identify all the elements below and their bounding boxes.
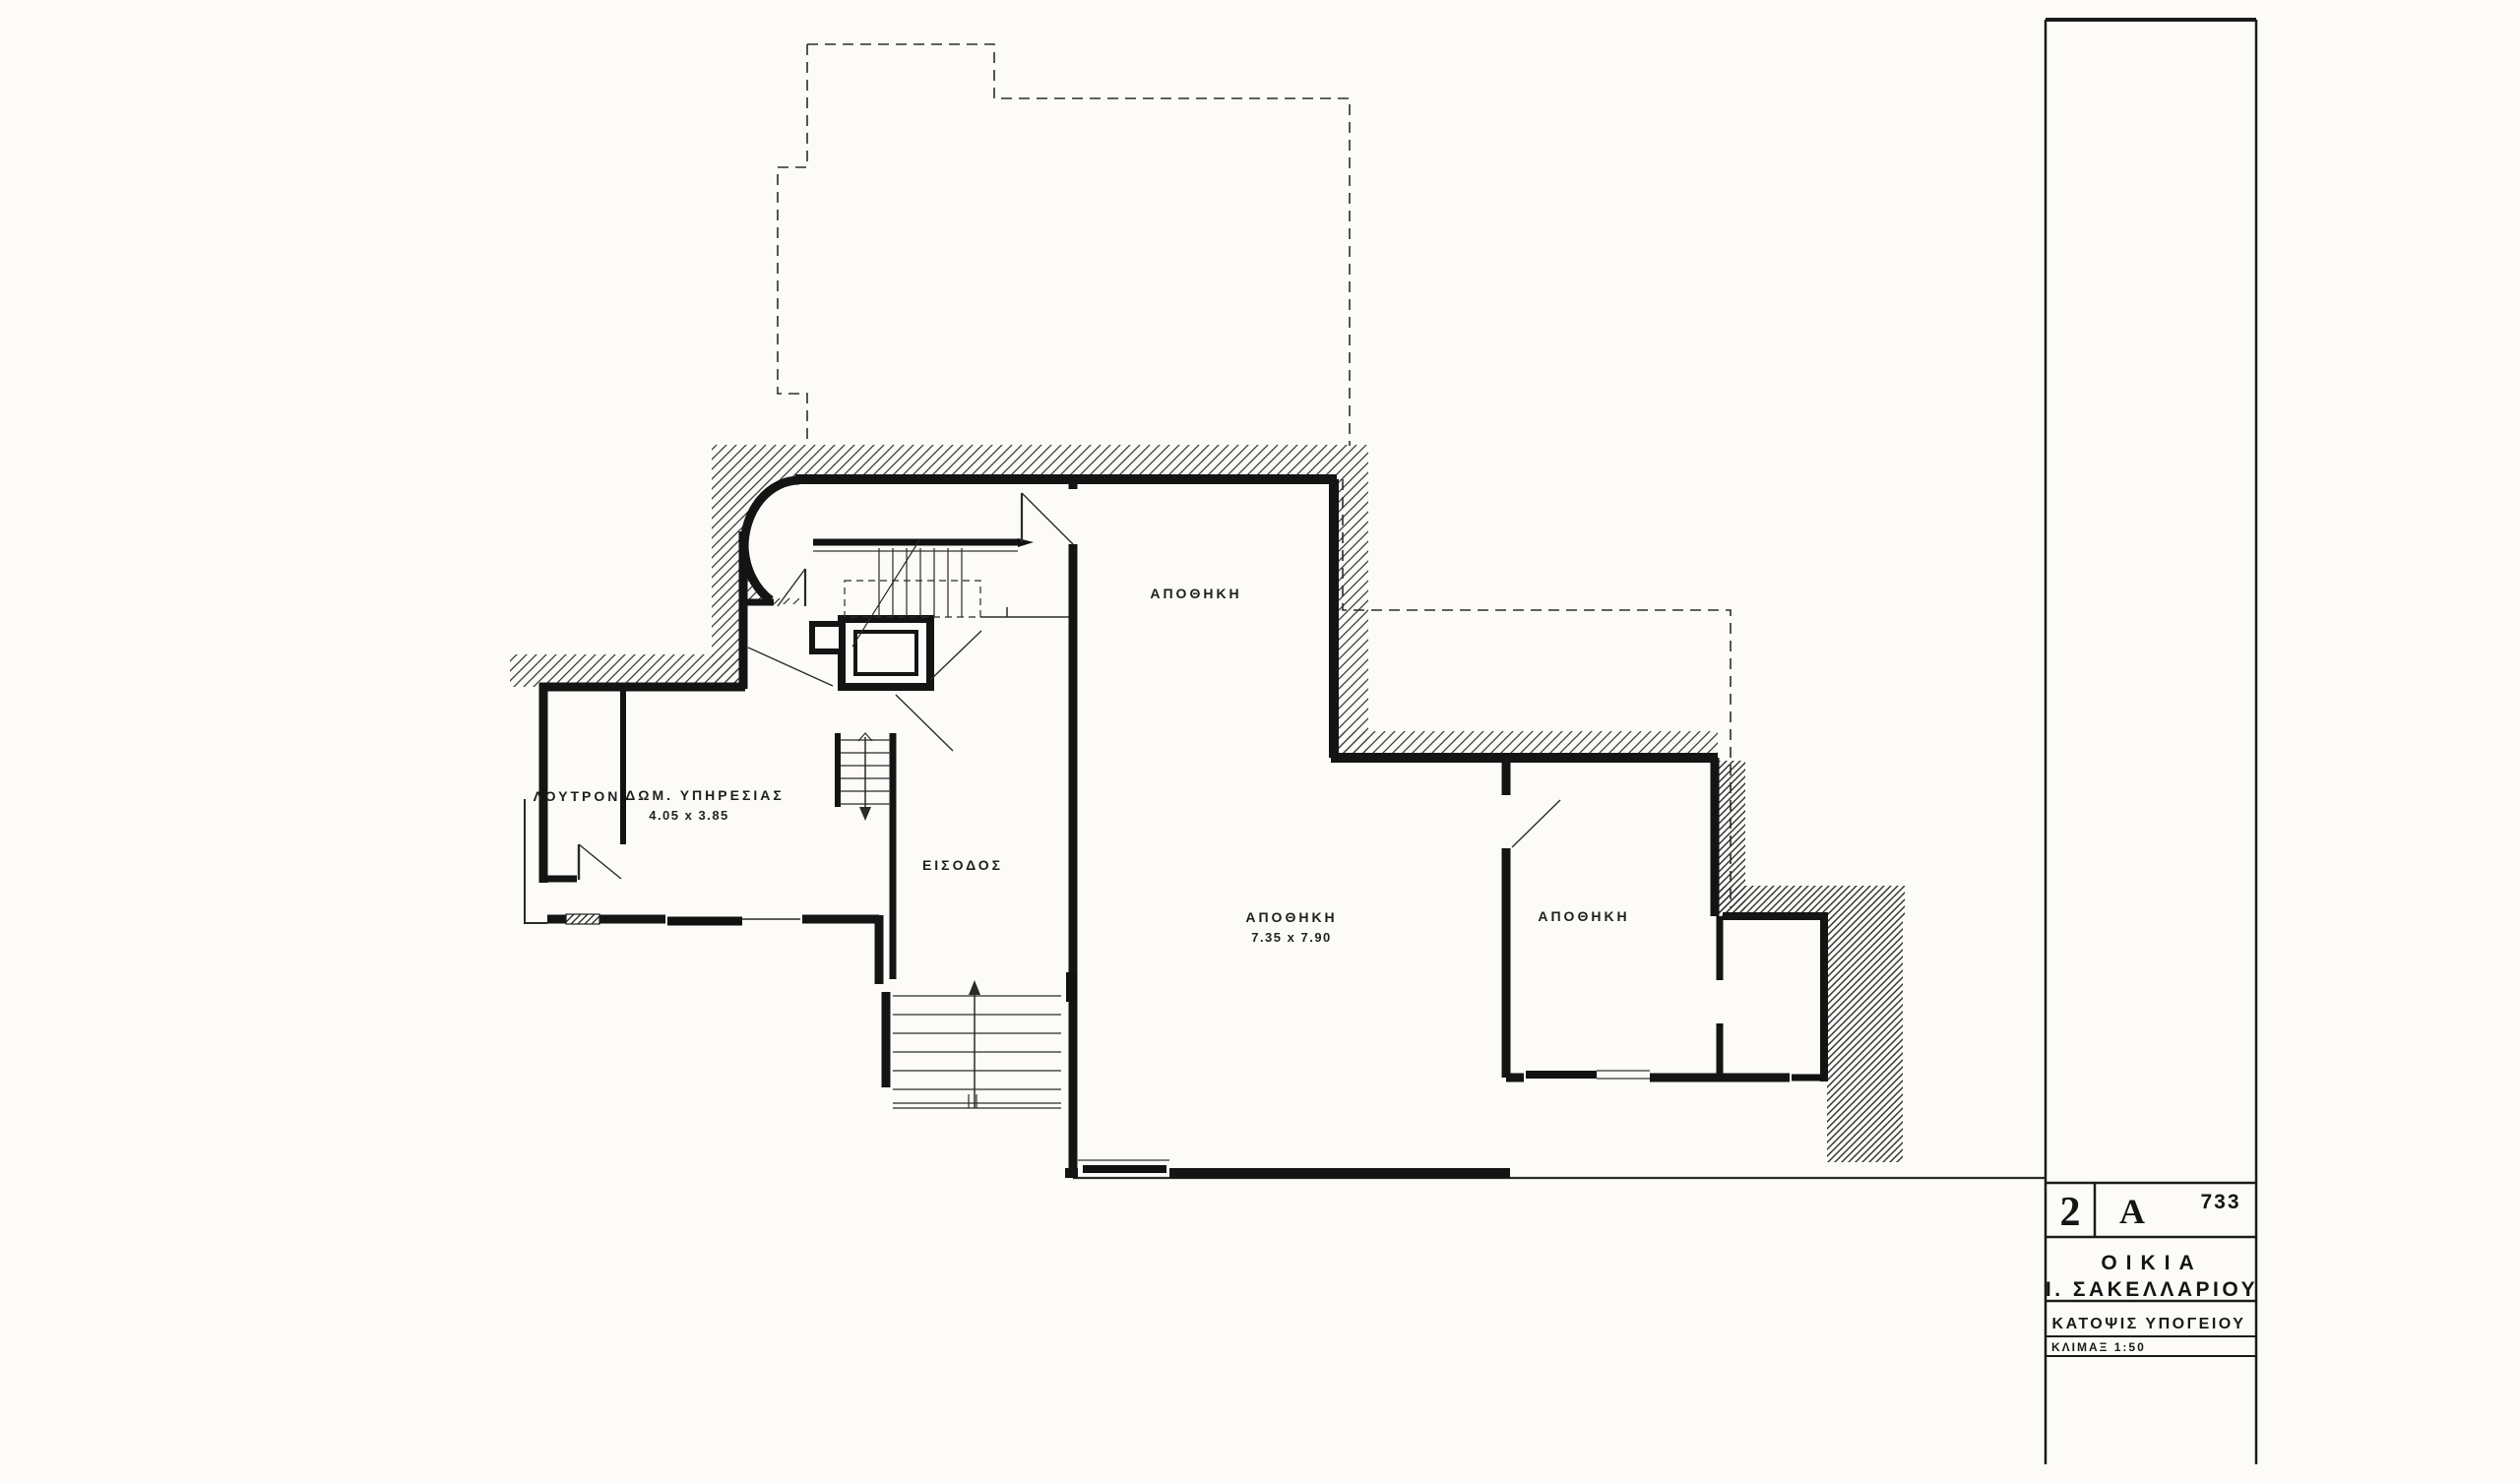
room-label-storage-main: ΑΠΟΘΗΚΗ — [1245, 909, 1337, 925]
room-label-loutron: ΛΟΥΤΡΟΝ — [534, 788, 621, 804]
room-label-storage-upper: ΑΠΟΘΗΚΗ — [1150, 586, 1241, 601]
title-block-drawing-title: ΚΑΤΟΨΙΣ ΥΠΟΓΕΙΟΥ — [2052, 1316, 2246, 1332]
title-block-project-line2: Ι. ΣΑΚΕΛΛΑΡΙΟΥ — [2046, 1278, 2258, 1301]
room-dims-service-room: 4.05 x 3.85 — [649, 808, 729, 823]
floor-plan-drawing: ΛΟΥΤΡΟΝ ΔΩΜ. ΥΠΗΡΕΣΙΑΣ 4.05 x 3.85 ΕΙΣΟΔ… — [0, 0, 2520, 1483]
windows — [566, 538, 1820, 1169]
earth-hatching — [510, 445, 1905, 1162]
title-block: 2 A 733 ΟΙΚΙΑ Ι. ΣΑΚΕΛΛΑΡΙΟΥ ΚΑΤΟΨΙΣ ΥΠΟ… — [2046, 20, 2258, 1464]
title-block-project-line1: ΟΙΚΙΑ — [2101, 1252, 2202, 1274]
title-block-scale: ΚΛΙΜΑΞ 1:50 — [2051, 1340, 2146, 1354]
title-block-sheet-number: 733 — [2200, 1191, 2240, 1213]
drawing-sheet: ΛΟΥΤΡΟΝ ΔΩΜ. ΥΠΗΡΕΣΙΑΣ 4.05 x 3.85 ΕΙΣΟΔ… — [0, 0, 2520, 1483]
service-stair — [840, 733, 891, 821]
room-dims-storage-main: 7.35 x 7.90 — [1251, 930, 1332, 945]
room-labels: ΛΟΥΤΡΟΝ ΔΩΜ. ΥΠΗΡΕΣΙΑΣ 4.05 x 3.85 ΕΙΣΟΔ… — [534, 586, 1630, 945]
room-label-entrance: ΕΙΣΟΔΟΣ — [922, 857, 1003, 873]
room-label-storage-right: ΑΠΟΘΗΚΗ — [1538, 908, 1629, 924]
title-block-code-left: 2 — [2060, 1190, 2081, 1235]
exterior-entry-stair — [893, 980, 1061, 1108]
room-label-service-room: ΔΩΜ. ΥΠΗΡΕΣΙΑΣ — [625, 787, 785, 803]
title-block-code-middle: A — [2119, 1192, 2145, 1231]
